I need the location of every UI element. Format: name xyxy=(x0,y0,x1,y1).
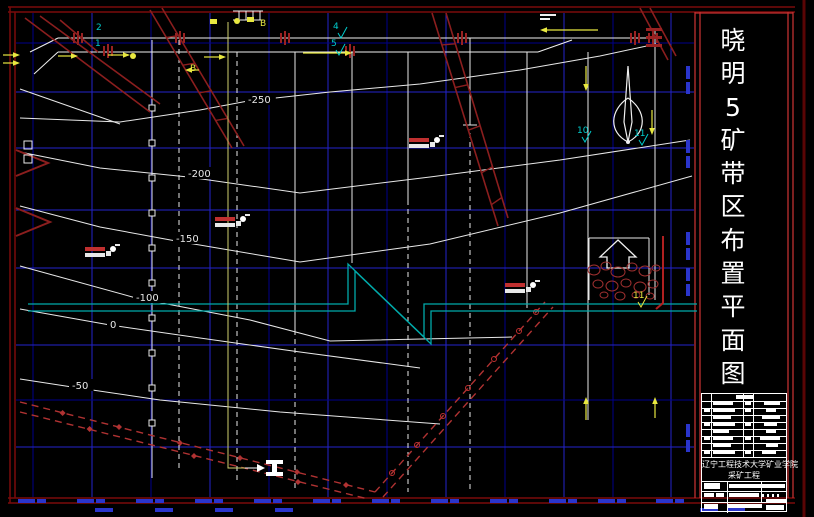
fault-rung xyxy=(442,44,455,45)
boundary-diamond xyxy=(237,455,243,461)
micro-text-bar xyxy=(777,494,779,497)
micro-text-bar xyxy=(729,484,785,488)
micro-text-bar xyxy=(704,483,720,489)
cad-mine-plan-screenshot: -250-200-150-1000-50 2145101111BB 晓明5矿带区… xyxy=(0,0,814,517)
contour-label-texts: -250-200-150-1000-50 xyxy=(69,93,276,392)
yellow-dot xyxy=(234,18,240,24)
borehole-marker xyxy=(505,280,540,293)
tie-symbol xyxy=(630,31,640,45)
rock-blob xyxy=(615,292,625,300)
department-name: 采矿工程 xyxy=(702,470,786,481)
contour-0 xyxy=(20,309,420,368)
station-square xyxy=(149,280,155,286)
micro-text-bar xyxy=(762,494,764,497)
svg-text:B: B xyxy=(260,19,266,29)
title-char: 矿 xyxy=(720,124,745,157)
boundary-markers xyxy=(60,310,539,489)
title-char: 带 xyxy=(720,157,745,190)
yellow-dot xyxy=(130,53,136,59)
borehole-marker xyxy=(85,244,120,257)
micro-text-bar xyxy=(716,493,724,497)
contour-label: -200 xyxy=(185,167,216,180)
boundary-circle xyxy=(492,357,497,362)
station-square xyxy=(149,420,155,426)
tie-symbol xyxy=(457,31,467,45)
direction-arrow xyxy=(204,54,226,60)
svg-text:-100: -100 xyxy=(136,293,159,304)
micro-text-bar xyxy=(713,409,735,412)
right-coordinate-label xyxy=(686,424,690,452)
bottom-coordinate-label xyxy=(490,499,518,503)
fault-rung xyxy=(216,118,228,120)
micro-text-bar xyxy=(736,395,754,399)
bottom-coordinate-label xyxy=(313,499,341,503)
bottom-coordinate-label xyxy=(77,499,105,503)
leader-tick xyxy=(338,27,347,38)
point-label: 4 xyxy=(333,22,347,38)
drawing-canvas[interactable]: -250-200-150-1000-50 2145101111BB xyxy=(0,0,814,517)
micro-text-bar xyxy=(762,416,780,419)
point-label: 1 xyxy=(95,39,101,49)
right-coordinate-label xyxy=(686,268,690,296)
micro-text-bar xyxy=(729,493,759,497)
fault-rung xyxy=(491,198,501,205)
svg-text:1: 1 xyxy=(95,39,101,49)
boundary-diamond xyxy=(60,410,66,416)
micro-text-bar xyxy=(713,402,733,405)
micro-text-bar xyxy=(760,437,780,440)
micro-text-bar xyxy=(762,451,776,454)
table-rule xyxy=(727,481,728,513)
bottom-coordinate-label xyxy=(656,499,684,503)
point-label: 10 xyxy=(577,126,591,142)
bottom-coordinate-label xyxy=(372,499,400,503)
roadway-tie-symbols xyxy=(73,31,658,58)
station-square xyxy=(149,350,155,356)
station-square xyxy=(149,315,155,321)
micro-text-bar xyxy=(766,430,776,433)
direction-arrow xyxy=(3,60,20,66)
fault-hatch-rungs xyxy=(166,36,501,205)
point-label: 2 xyxy=(96,23,102,33)
station-square xyxy=(149,245,155,251)
section-lines xyxy=(152,30,655,492)
right-coordinate-label xyxy=(686,66,690,94)
fault-rung xyxy=(455,85,468,88)
title-char: 面 xyxy=(720,324,745,357)
contour-label: -150 xyxy=(173,232,204,245)
direction-arrow xyxy=(649,110,655,135)
right-coordinate-label xyxy=(686,140,690,168)
bottom-coordinate-label xyxy=(598,499,626,503)
svg-text:-150: -150 xyxy=(176,234,199,245)
bottom-coordinate-label xyxy=(136,499,164,503)
table-rule xyxy=(711,394,712,457)
rock-blob xyxy=(601,262,611,270)
micro-text-bar xyxy=(745,437,751,440)
boundary-diamond xyxy=(177,440,183,446)
contour-label: 0 xyxy=(107,318,119,331)
svg-text:B: B xyxy=(190,64,196,74)
rock-blob xyxy=(593,280,603,288)
institution-name: 辽宁工程技术大学矿业学院 xyxy=(702,459,786,470)
direction-arrow xyxy=(540,27,598,33)
micro-text-bar xyxy=(713,430,729,433)
contour-label: -50 xyxy=(69,379,94,392)
title-char: 明 xyxy=(720,57,745,90)
micro-text-bar xyxy=(772,494,774,497)
title-char: 图 xyxy=(720,357,745,390)
micro-text-bar xyxy=(767,494,769,497)
contour-lines xyxy=(20,44,692,424)
station-square xyxy=(149,175,155,181)
shaft-area xyxy=(588,236,663,309)
station-square xyxy=(149,105,155,111)
tie-symbol xyxy=(280,31,290,45)
rock-blob xyxy=(588,265,600,275)
title-block: 辽宁工程技术大学矿业学院 采矿工程 xyxy=(701,393,787,512)
point-label: B xyxy=(190,64,196,74)
boundary-diamond xyxy=(343,482,349,488)
table-rule xyxy=(753,394,754,457)
micro-text-bar xyxy=(764,402,780,405)
station-square xyxy=(149,210,155,216)
boundary-diamond xyxy=(116,424,122,430)
rock-blob xyxy=(606,281,618,291)
bottom-dash xyxy=(155,508,173,512)
micro-text-bar xyxy=(713,444,731,447)
boundary-diamond xyxy=(191,453,197,459)
title-char: 置 xyxy=(720,257,745,290)
svg-text:-200: -200 xyxy=(188,169,211,180)
svg-text:11: 11 xyxy=(633,291,644,301)
fault-rung xyxy=(468,126,480,130)
bottom-coordinate-label xyxy=(18,499,46,503)
svg-text:-50: -50 xyxy=(72,381,88,392)
rock-blob xyxy=(600,292,608,298)
micro-text-bar xyxy=(704,437,710,440)
micro-text-bar xyxy=(704,409,710,412)
micro-text-bar xyxy=(766,444,778,447)
contour-250 xyxy=(20,44,656,122)
svg-text:11: 11 xyxy=(634,129,645,139)
right-coordinate-label xyxy=(686,232,690,260)
micro-text-bar xyxy=(704,451,710,454)
contour-label: -100 xyxy=(133,291,164,304)
borehole-marker xyxy=(215,214,250,227)
shaft-up-arrow xyxy=(600,240,636,268)
table-rule xyxy=(702,491,786,492)
bottom-coordinate-label xyxy=(254,499,282,503)
micro-text-bar xyxy=(764,423,777,426)
bottom-coordinate-label xyxy=(549,499,577,503)
micro-text-bar xyxy=(713,423,735,426)
svg-text:5: 5 xyxy=(331,39,337,49)
borehole-marker xyxy=(409,135,444,148)
yellow-tag xyxy=(247,17,254,22)
svg-text:10: 10 xyxy=(577,126,589,136)
svg-text:4: 4 xyxy=(333,22,339,32)
direction-arrow xyxy=(58,53,78,59)
bottom-coordinate-label xyxy=(195,499,223,503)
micro-text-bar xyxy=(704,493,714,497)
svg-text:-250: -250 xyxy=(248,95,271,106)
title-char: 5 xyxy=(725,91,741,124)
station-square xyxy=(149,140,155,146)
micro-text-bar xyxy=(766,505,784,510)
micro-text-bar xyxy=(704,504,718,509)
micro-text-bar xyxy=(713,451,735,454)
title-char: 区 xyxy=(720,190,745,223)
point-label: 11 xyxy=(634,129,648,145)
table-rule xyxy=(702,457,786,458)
svg-text:2: 2 xyxy=(96,23,102,33)
drawing-title-vertical: 晓明5矿带区布置平面图 xyxy=(695,24,771,390)
micro-text-bar xyxy=(745,423,751,426)
table-rule xyxy=(702,481,786,482)
rock-blob xyxy=(646,293,654,299)
point-label: B xyxy=(260,19,266,29)
institution-cell: 辽宁工程技术大学矿业学院 采矿工程 xyxy=(702,457,786,481)
rock-blob xyxy=(621,279,631,287)
micro-text-bar xyxy=(745,451,751,454)
title-char: 晓 xyxy=(720,24,745,57)
conveyor-line xyxy=(28,264,697,344)
micro-text-bar xyxy=(766,409,776,412)
title-char: 布 xyxy=(720,224,745,257)
tie-symbol xyxy=(103,44,113,58)
left-edge-markers xyxy=(24,141,32,163)
table-rule xyxy=(743,394,744,457)
coordinate-grid xyxy=(16,13,694,497)
direction-arrow xyxy=(3,52,20,58)
micro-text-bar xyxy=(713,416,731,419)
micro-text-bar xyxy=(745,402,751,405)
yellow-arrows xyxy=(3,17,658,420)
bottom-dash xyxy=(215,508,233,512)
svg-text:0: 0 xyxy=(110,320,116,331)
station-square xyxy=(149,385,155,391)
title-char: 平 xyxy=(720,290,745,323)
yellow-tag xyxy=(210,19,217,24)
contour-150 xyxy=(20,176,692,262)
micro-text-bar xyxy=(728,504,762,508)
micro-text-bar xyxy=(713,437,733,440)
bottom-dash xyxy=(95,508,113,512)
contour-label: -250 xyxy=(245,93,276,106)
micro-text-bar xyxy=(745,409,751,412)
bottom-dash xyxy=(275,508,293,512)
bottom-coordinate-label xyxy=(431,499,459,503)
micro-text-bar xyxy=(704,423,710,426)
boundary-diamond xyxy=(295,479,301,485)
micro-text-bar xyxy=(766,499,786,503)
